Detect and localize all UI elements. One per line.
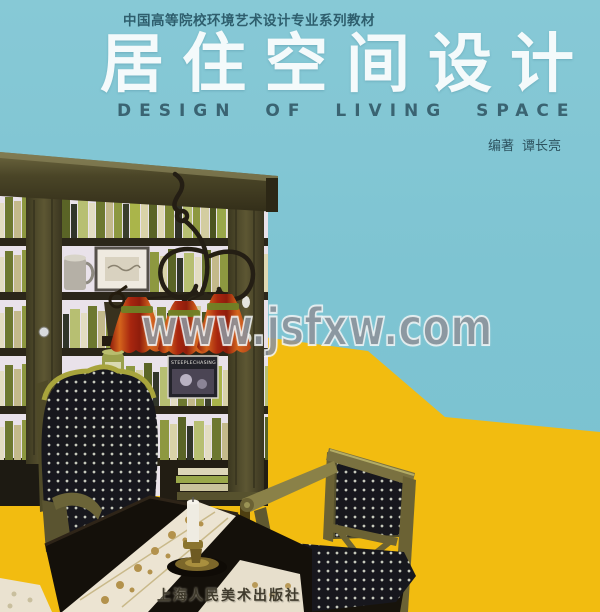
- book-title: 居住空间设计: [100, 33, 592, 97]
- post-knob: [39, 327, 49, 337]
- book-cover: STEEPLECHASING: [0, 0, 600, 612]
- framed-picture: [96, 248, 148, 290]
- series-title: 中国高等院校环境艺术设计专业系列教材: [123, 9, 375, 29]
- author-name: 谭长亮: [522, 139, 561, 154]
- magazine-title: STEEPLECHASING: [171, 360, 216, 366]
- magazine: STEEPLECHASING: [168, 356, 218, 398]
- watermark: www.jsfxw.com: [141, 302, 493, 354]
- author-prefix: 编著: [488, 139, 514, 154]
- candle: [187, 502, 199, 542]
- english-title: DESIGN OF LIVING SPACE: [117, 101, 577, 121]
- author-line: 编著谭长亮: [488, 135, 561, 154]
- publisher-name: 上海人民美术出版社: [157, 585, 301, 605]
